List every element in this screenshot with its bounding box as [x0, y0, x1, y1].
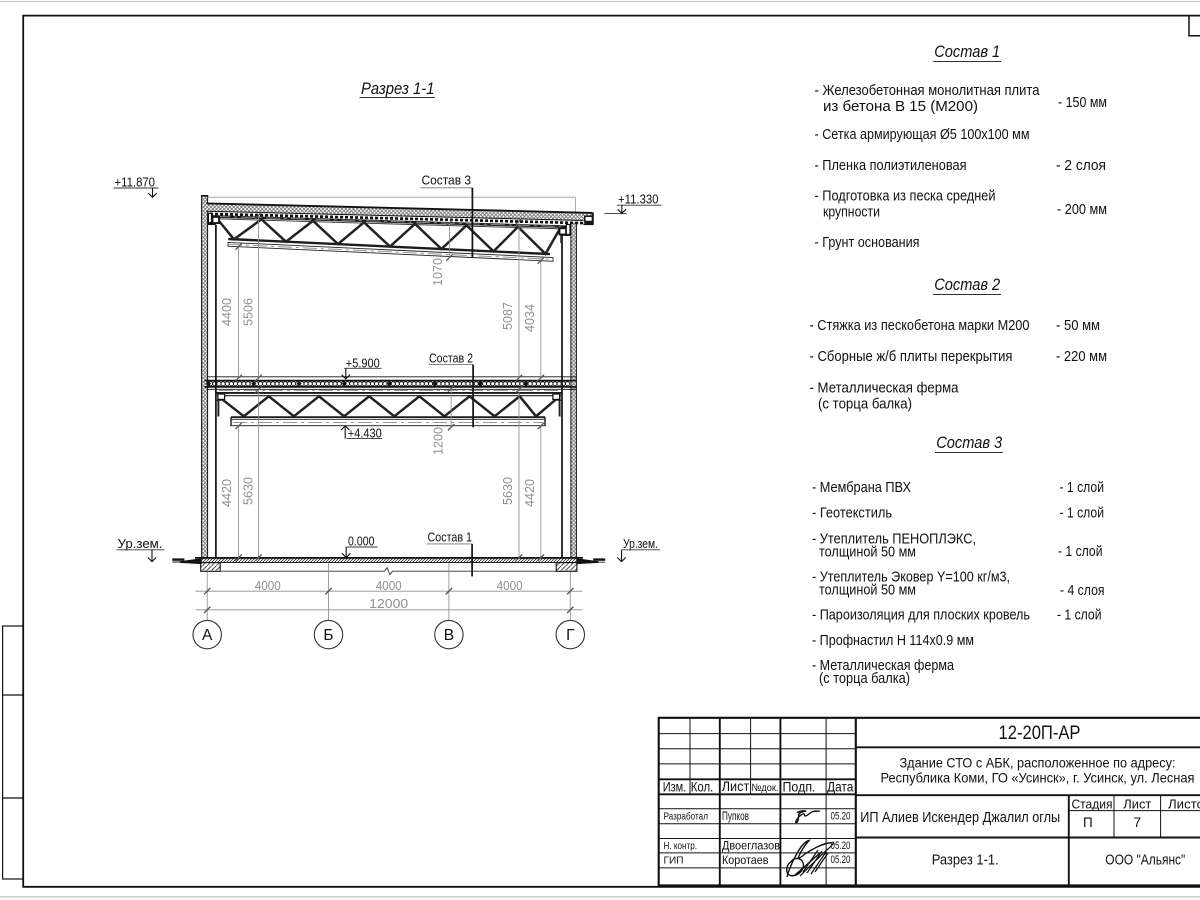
svg-text:Б: Б [323, 627, 333, 644]
svg-text:4000: 4000 [497, 578, 523, 593]
svg-text:- Сетка армирующая Ø5 100х100: - Сетка армирующая Ø5 100х100 мм [815, 127, 1030, 143]
svg-text:4000: 4000 [376, 578, 402, 593]
svg-text:4000: 4000 [255, 578, 281, 593]
svg-text:Коротаев: Коротаев [722, 855, 769, 867]
svg-text:толщиной 50 мм: толщиной 50 мм [819, 583, 916, 599]
svg-text:№док.: №док. [752, 782, 779, 794]
svg-text:(с торца балка): (с торца балка) [818, 397, 912, 413]
svg-text:Состав 3: Состав 3 [936, 434, 1003, 452]
svg-text:крупности: крупности [823, 205, 880, 221]
svg-text:Состав 2: Состав 2 [429, 350, 473, 365]
svg-text:+4.430: +4.430 [348, 425, 382, 440]
svg-text:толщиной 50 мм: толщиной 50 мм [819, 545, 916, 561]
svg-text:Изм.: Изм. [663, 780, 687, 795]
svg-text:4400: 4400 [220, 298, 234, 326]
svg-text:Разработал: Разработал [664, 811, 709, 823]
svg-text:Состав 1: Состав 1 [934, 43, 1000, 61]
svg-text:Двоеглазов: Двоеглазов [722, 841, 780, 853]
svg-text:ГИП: ГИП [664, 856, 684, 867]
svg-text:- Мембрана ПВХ: - Мембрана ПВХ [812, 480, 911, 496]
svg-text:Дата: Дата [827, 780, 854, 795]
svg-text:Состав 2: Состав 2 [934, 276, 1000, 294]
svg-text:- 1 слой: - 1 слой [1058, 544, 1103, 560]
svg-text:05.20: 05.20 [831, 840, 851, 852]
svg-text:0.000: 0.000 [348, 534, 375, 549]
svg-text:- Железобетонная монолитная п: - Железобетонная монолитная плита [815, 83, 1041, 99]
svg-text:5087: 5087 [501, 302, 515, 330]
svg-text:Г: Г [566, 627, 575, 644]
svg-text:Республика Коми, ГО «Усинск»,: Республика Коми, ГО «Усинск», г. Усинск,… [881, 770, 1195, 786]
svg-text:- 50 мм: - 50 мм [1056, 318, 1100, 334]
svg-text:4420: 4420 [523, 479, 537, 507]
svg-text:Ур.зем.: Ур.зем. [118, 536, 163, 551]
svg-text:ИП Алиев Искендер Джалил оглы: ИП Алиев Искендер Джалил оглы [860, 810, 1060, 826]
svg-text:- 1 слой: - 1 слой [1057, 608, 1102, 624]
svg-text:ООО "Альянс": ООО "Альянс" [1105, 853, 1185, 869]
svg-text:Состав 1: Состав 1 [428, 530, 473, 545]
svg-text:7: 7 [1134, 815, 1142, 830]
svg-text:Состав 3: Состав 3 [422, 173, 472, 188]
svg-text:- Пароизоляция для плоских кро: - Пароизоляция для плоских кровель [812, 608, 1030, 624]
svg-text:- Профнастил Н 114х0.9 мм: - Профнастил Н 114х0.9 мм [812, 633, 974, 649]
svg-text:4420: 4420 [220, 479, 234, 507]
svg-text:5630: 5630 [501, 477, 515, 505]
svg-text:- Пленка полиэтиленовая: - Пленка полиэтиленовая [815, 158, 967, 174]
svg-text:- Геотекстиль: - Геотекстиль [812, 506, 892, 522]
svg-text:12000: 12000 [369, 596, 408, 611]
svg-text:из бетона В 15 (М200): из бетона В 15 (М200) [823, 99, 978, 115]
svg-text:- Подготовка из песка средней: - Подготовка из песка средней [815, 189, 996, 205]
svg-text:Н. контр.: Н. контр. [664, 841, 698, 852]
svg-text:Разрез 1-1.: Разрез 1-1. [932, 853, 999, 869]
svg-text:- Металлическая ферма: - Металлическая ферма [810, 381, 960, 397]
svg-text:+11.870: +11.870 [115, 175, 156, 190]
svg-text:- 1 слой: - 1 слой [1060, 506, 1105, 522]
svg-text:Здание СТО с АБК, расположенно: Здание СТО с АБК, расположенное по адрес… [900, 755, 1176, 771]
svg-text:4034: 4034 [523, 304, 537, 332]
svg-text:- Грунт основания: - Грунт основания [815, 235, 920, 251]
svg-text:Лист: Лист [722, 779, 750, 794]
svg-text:5630: 5630 [241, 477, 255, 505]
svg-text:Лист: Лист [1123, 797, 1151, 812]
svg-text:Подп.: Подп. [783, 780, 816, 795]
svg-text:05.20: 05.20 [831, 811, 851, 823]
svg-text:- 220 мм: - 220 мм [1056, 349, 1107, 365]
svg-text:Листов: Листов [1168, 797, 1200, 812]
svg-text:А: А [202, 627, 213, 644]
svg-text:- 4 слоя: - 4 слоя [1060, 583, 1105, 599]
svg-text:- 1 слой: - 1 слой [1060, 480, 1105, 496]
svg-text:1200: 1200 [432, 427, 446, 455]
svg-text:Разрез 1-1: Разрез 1-1 [361, 80, 435, 98]
svg-text:Пупков: Пупков [722, 811, 749, 823]
svg-text:1070: 1070 [431, 258, 445, 286]
svg-text:Кол.: Кол. [691, 780, 714, 795]
svg-text:Стадия: Стадия [1072, 797, 1113, 812]
svg-text:5506: 5506 [241, 298, 255, 326]
svg-text:- Сборные ж/б плиты перекрытия: - Сборные ж/б плиты перекрытия [810, 349, 1013, 365]
svg-text:В: В [444, 627, 454, 644]
svg-text:Ур.зем.: Ур.зем. [623, 536, 658, 551]
svg-text:- 150 мм: - 150 мм [1058, 95, 1107, 111]
svg-text:12-20П-АР: 12-20П-АР [999, 723, 1081, 744]
svg-text:- 2 слоя: - 2 слоя [1056, 158, 1106, 174]
svg-text:+11.330: +11.330 [618, 192, 659, 207]
svg-text:(с торца балка): (с торца балка) [819, 671, 910, 687]
svg-text:- Стяжка из пескобетона марки: - Стяжка из пескобетона марки М200 [810, 318, 1030, 334]
svg-text:05.20: 05.20 [831, 854, 851, 866]
svg-text:- 200 мм: - 200 мм [1057, 202, 1107, 218]
svg-text:П: П [1083, 815, 1093, 830]
